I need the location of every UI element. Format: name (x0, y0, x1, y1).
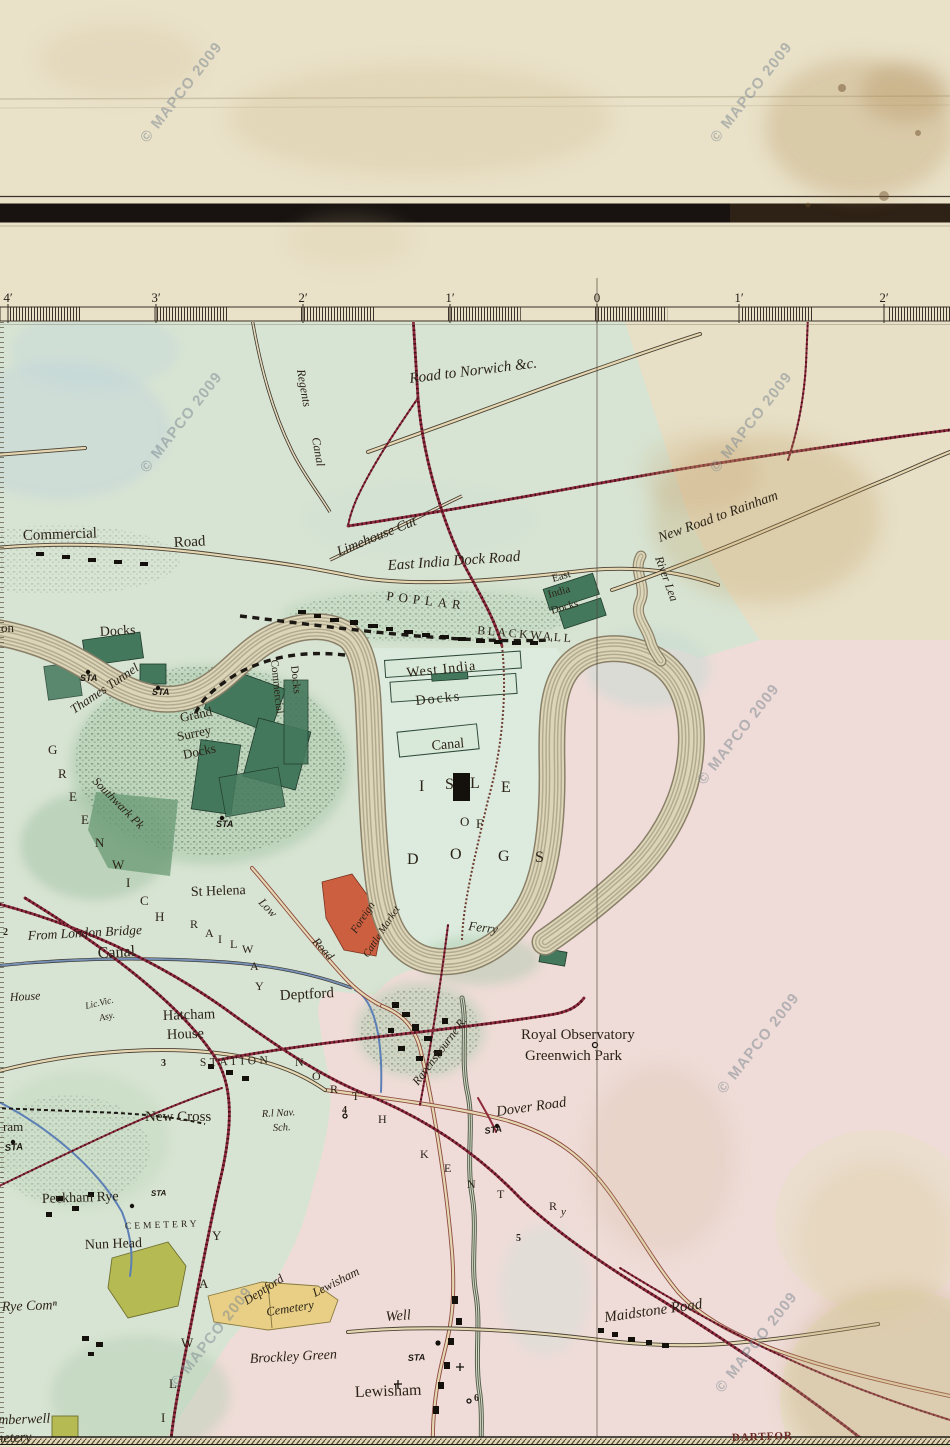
map-label-ram: ram (3, 1119, 23, 1134)
antique-map-sheet: 4′3′2′1′01′2′ Road to Norwich &c.Regents… (0, 0, 950, 1447)
map-label-surrey-canal: Canal (97, 943, 136, 962)
map-label-dogs-s: S (535, 849, 544, 866)
scale-bar-segment (741, 308, 814, 321)
map-label-grw-h: H (155, 909, 164, 924)
map-label-dartford: DARTFOR (732, 1430, 793, 1444)
map-label-nk-t2: T (497, 1187, 505, 1201)
scale-tick-label: 0 (594, 290, 601, 305)
map-label-dogs-o: O (450, 846, 462, 863)
map-label-rly2-a: A (199, 1276, 209, 1291)
map-label-sta-1: STA (80, 673, 97, 683)
map-label-dogs-g: G (498, 848, 510, 865)
map-label-grw-w: W (112, 857, 125, 872)
map-label-st-helena: St Helena (191, 883, 247, 900)
map-label-sta-2: STA (152, 687, 169, 697)
scale-tick-label: 3′ (151, 290, 161, 305)
map-label-nk-t1: T (352, 1089, 360, 1103)
map-label-r-nav: R.l Nav. (261, 1107, 296, 1120)
map-label-new-cross: New Cross (145, 1109, 211, 1125)
map-label-well: Well (385, 1307, 411, 1325)
map-label-house-w: House (8, 988, 41, 1004)
map-label-greenwich-park: Greenwich Park (525, 1048, 623, 1064)
map-label-nk-h: H (378, 1112, 387, 1126)
map-label-rly2-y: Y (212, 1228, 222, 1243)
map-canvas: 4′3′2′1′01′2′ Road to Norwich &c.Regents… (0, 0, 950, 1447)
map-label-mile-4: 4 (342, 1105, 347, 1116)
map-label-isle-f: F (476, 816, 483, 831)
map-label-rly1-l: L (230, 937, 237, 951)
map-label-hatcham: Hatcham (163, 1006, 217, 1024)
map-label-isle-s: S (445, 776, 454, 793)
map-label-nk-o: O (312, 1069, 321, 1083)
map-label-grw-c: C (140, 893, 149, 908)
map-label-mile-3: 3 (161, 1058, 166, 1069)
map-label-isle-l: L (470, 775, 480, 792)
map-label-grw-e1: E (69, 789, 77, 804)
scale-bar-segment (8, 308, 81, 321)
station-dot (130, 1204, 134, 1208)
map-label-peckham-rye: Peckham Rye (42, 1189, 119, 1207)
map-label-london-on: on (1, 620, 15, 635)
scale-bar-segment (301, 308, 374, 321)
map-label-royal-observatory: Royal Observatory (521, 1027, 635, 1043)
map-label-rly1-w: W (242, 942, 254, 956)
map-label-rly2-i: I (161, 1410, 165, 1425)
map-label-deptford: Deptford (279, 985, 334, 1004)
map-label-hatcham-house: House (167, 1026, 205, 1043)
map-label-nk-k: K (420, 1147, 429, 1161)
map-label-rye-common: Rye Comⁿ (1, 1298, 58, 1315)
scale-tick-label: 2′ (298, 290, 308, 305)
map-label-camberwell: Camberwell (0, 1412, 51, 1429)
map-label-nk-ry-r: R (549, 1199, 557, 1213)
map-label-mile-6: 6 (474, 1393, 479, 1404)
map-label-nk-n1: N (295, 1055, 304, 1069)
map-label-sta-left: STA (4, 1141, 23, 1154)
map-label-rly1-y: Y (255, 979, 264, 993)
map-label-mile-2: 2 (3, 927, 8, 938)
map-label-sta-3: STA (216, 819, 233, 829)
scale-tick-label: 1′ (445, 290, 455, 305)
map-label-grw-r: R (58, 766, 67, 781)
map-label-lewisham: Lewisham (355, 1382, 423, 1401)
scale-tick-label: 4′ (3, 290, 13, 305)
scale-bar-segment (594, 308, 667, 321)
map-label-nun-head: Nun Head (85, 1236, 143, 1253)
map-label-london-docks: Docks (99, 623, 136, 640)
map-label-commercial: Commercial (23, 525, 98, 544)
map-label-grw-g: G (48, 742, 57, 757)
map-label-sta-well: STA (408, 1352, 426, 1363)
map-label-nk-n2: N (467, 1177, 476, 1191)
map-label-rly1-r: R (190, 917, 198, 931)
map-label-rly1-a1: A (205, 926, 214, 940)
map-label-isle-i: I (419, 778, 424, 795)
map-label-camberwell-cemetery: Cemetery (0, 1430, 33, 1447)
map-label-rly1-i: I (218, 932, 222, 946)
map-label-nk-e: E (444, 1161, 451, 1175)
map-label-sch: Sch. (273, 1122, 291, 1134)
scale-bar-segment (155, 308, 228, 321)
station-dot (435, 1340, 440, 1345)
map-label-nk-ry-y: y (560, 1206, 566, 1218)
map-label-sta-peckham: STA (151, 1188, 167, 1198)
map-label-dogs-d: D (407, 851, 419, 868)
scale-tick-label: 2′ (879, 290, 889, 305)
map-label-grw-n: N (95, 835, 105, 850)
left-neatline-hatch (0, 322, 5, 1437)
map-label-commercial-road: Road (173, 533, 206, 551)
scale-bar-segment (887, 308, 950, 321)
map-label-grw-e2: E (81, 812, 89, 827)
map-label-station: STATION (200, 1055, 272, 1069)
map-label-nk-r: R (330, 1082, 338, 1096)
map-label-mile-5: 5 (516, 1233, 521, 1244)
isle-building (453, 773, 470, 801)
map-label-millwall-canal: Canal (431, 736, 465, 754)
map-label-isle-o2: O (460, 814, 469, 829)
map-label-grw-i: I (126, 875, 130, 890)
scale-tick-label: 1′ (734, 290, 744, 305)
map-label-isle-e: E (501, 779, 511, 796)
map-label-rly1-a2: A (250, 959, 259, 973)
scale-bar-segment (448, 308, 521, 321)
